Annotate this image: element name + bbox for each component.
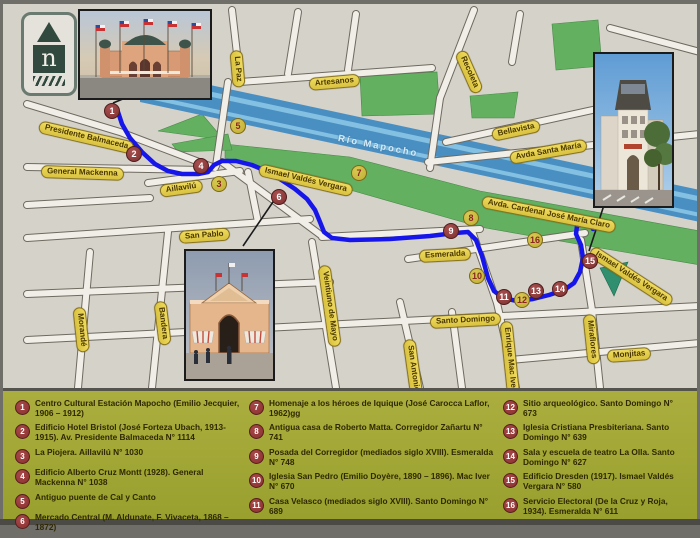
legend-item-7: 7Homenaje a los héroes de Iquique (José … <box>249 399 495 419</box>
legend-item-15: 15Edificio Dresden (1917). Ismael Valdés… <box>503 472 689 492</box>
legend-item-14: 14Sala y escuela de teatro La Olla. Sant… <box>503 448 689 468</box>
map-marker-11: 11 <box>496 289 512 305</box>
map-marker-7: 7 <box>351 165 367 181</box>
legend-item-text: Antiguo puente de Cal y Canto <box>35 493 156 503</box>
legend-panel: 1Centro Cultural Estación Mapocho (Emili… <box>3 388 697 519</box>
legend-number-badge: 12 <box>503 400 518 415</box>
map-marker-9: 9 <box>443 223 459 239</box>
photographed-tour-map: { "north_badge": { "letter": "n" }, "map… <box>0 0 700 525</box>
legend-item-text: Sitio arqueológico. Santo Domingo N° 673 <box>523 399 689 419</box>
legend-number-badge: 8 <box>249 424 264 439</box>
map-marker-10: 10 <box>469 268 485 284</box>
legend-item-text: Iglesia San Pedro (Emilio Doyère, 1890 –… <box>269 472 495 492</box>
legend-item-5: 5Antiguo puente de Cal y Canto <box>15 493 241 509</box>
legend-item-text: Edificio Hotel Bristol (José Forteza Uba… <box>35 423 241 443</box>
north-arrow-icon <box>37 22 61 42</box>
legend-number-badge: 4 <box>15 469 30 484</box>
map-marker-12: 12 <box>514 292 530 308</box>
map-marker-2: 2 <box>126 146 142 162</box>
legend-number-badge: 14 <box>503 449 518 464</box>
map-marker-8: 8 <box>463 210 479 226</box>
north-letter-icon: n <box>33 45 65 73</box>
legend-item-8: 8Antigua casa de Roberto Matta. Corregid… <box>249 423 495 443</box>
map-marker-13: 13 <box>528 283 544 299</box>
legend-item-text: Casa Velasco (mediados siglo XVIII). San… <box>269 497 495 517</box>
legend-item-text: La Piojera. Aillavilú N° 1030 <box>35 448 143 458</box>
mercado-central-photo <box>184 249 275 381</box>
legend-number-badge: 11 <box>249 498 264 513</box>
legend-column-3: 12Sitio arqueológico. Santo Domingo N° 6… <box>503 399 689 538</box>
legend-item-text: Homenaje a los héroes de Iquique (José C… <box>269 399 495 419</box>
legend-column-1: 1Centro Cultural Estación Mapocho (Emili… <box>15 399 241 538</box>
legend-item-text: Edificio Alberto Cruz Montt (1928). Gene… <box>35 468 241 488</box>
legend-item-12: 12Sitio arqueológico. Santo Domingo N° 6… <box>503 399 689 419</box>
legend-item-2: 2Edificio Hotel Bristol (José Forteza Ub… <box>15 423 241 443</box>
legend-number-badge: 16 <box>503 498 518 513</box>
legend-item-text: Iglesia Cristiana Presbiteriana. Santo D… <box>523 423 689 443</box>
legend-number-badge: 9 <box>249 449 264 464</box>
edificio-dresden-photo <box>593 52 674 208</box>
estacion-mapocho-photo <box>78 9 212 100</box>
map-marker-1: 1 <box>104 103 120 119</box>
legend-item-text: Servicio Electoral (De la Cruz y Roja, 1… <box>523 497 689 517</box>
map-marker-15: 15 <box>582 253 598 269</box>
legend-number-badge: 15 <box>503 473 518 488</box>
legend-number-badge: 1 <box>15 400 30 415</box>
legend-number-badge: 6 <box>15 514 30 529</box>
legend-item-text: Sala y escuela de teatro La Olla. Santo … <box>523 448 689 468</box>
map-marker-14: 14 <box>552 281 568 297</box>
legend-item-6: 6Mercado Central (M. Aldunate, F. Vivace… <box>15 513 241 533</box>
legend-item-11: 11Casa Velasco (mediados siglo XVIII). S… <box>249 497 495 517</box>
legend-item-text: Centro Cultural Estación Mapocho (Emilio… <box>35 399 241 419</box>
legend-item-13: 13Iglesia Cristiana Presbiteriana. Santo… <box>503 423 689 443</box>
legend-item-4: 4Edificio Alberto Cruz Montt (1928). Gen… <box>15 468 241 488</box>
map-marker-16: 16 <box>527 232 543 248</box>
legend-item-text: Posada del Corregidor (mediados siglo XV… <box>269 448 495 468</box>
legend-item-1: 1Centro Cultural Estación Mapocho (Emili… <box>15 399 241 419</box>
legend-column-2: 7Homenaje a los héroes de Iquique (José … <box>249 399 495 538</box>
legend-number-badge: 5 <box>15 494 30 509</box>
legend-number-badge: 7 <box>249 400 264 415</box>
map-marker-5: 5 <box>230 118 246 134</box>
legend-item-9: 9Posada del Corregidor (mediados siglo X… <box>249 448 495 468</box>
legend-item-16: 16Servicio Electoral (De la Cruz y Roja,… <box>503 497 689 517</box>
legend-item-text: Mercado Central (M. Aldunate, F. Vivacet… <box>35 513 241 533</box>
legend-item-3: 3La Piojera. Aillavilú N° 1030 <box>15 448 241 464</box>
legend-item-text: Antigua casa de Roberto Matta. Corregido… <box>269 423 495 443</box>
legend-item-text: Edificio Dresden (1917). Ismael Valdés V… <box>523 472 689 492</box>
legend-item-10: 10Iglesia San Pedro (Emilio Doyère, 1890… <box>249 472 495 492</box>
hatch-decoration <box>33 76 65 86</box>
legend-number-badge: 13 <box>503 424 518 439</box>
legend-number-badge: 2 <box>15 424 30 439</box>
map-marker-3: 3 <box>211 176 227 192</box>
legend-number-badge: 10 <box>249 473 264 488</box>
north-compass-badge: n <box>21 12 77 96</box>
map-marker-6: 6 <box>271 189 287 205</box>
map-area: Presidente BalmacedaGeneral MackennaAill… <box>3 4 697 388</box>
legend-number-badge: 3 <box>15 449 30 464</box>
map-marker-4: 4 <box>193 158 209 174</box>
